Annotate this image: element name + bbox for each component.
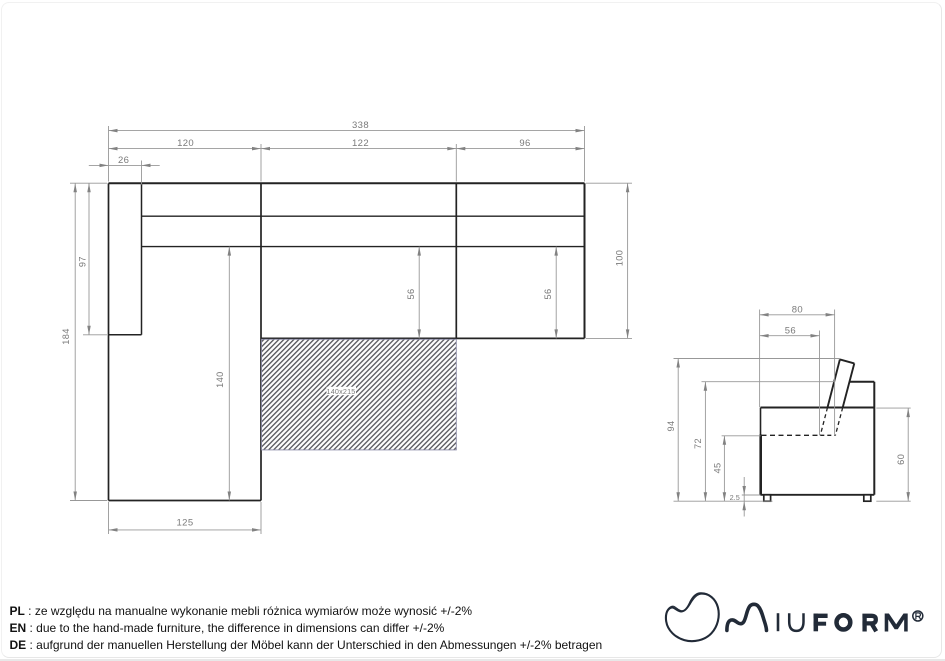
svg-text:2.5: 2.5 (730, 493, 740, 502)
svg-text:140: 140 (215, 371, 225, 388)
svg-text:338: 338 (352, 120, 369, 131)
svg-text:184: 184 (61, 328, 71, 345)
svg-text:100: 100 (614, 250, 624, 267)
svg-text:97: 97 (78, 256, 88, 267)
svg-text:60: 60 (896, 454, 906, 465)
svg-text:26: 26 (118, 155, 129, 166)
svg-text:122: 122 (352, 138, 369, 149)
svg-text:120: 120 (177, 138, 194, 149)
svg-text:72: 72 (693, 438, 703, 449)
svg-text:56: 56 (406, 288, 416, 299)
svg-text:45: 45 (712, 462, 722, 473)
svg-text:125: 125 (176, 517, 193, 528)
svg-text:56: 56 (785, 325, 796, 336)
svg-text:140x215: 140x215 (327, 387, 356, 396)
svg-text:94: 94 (666, 420, 676, 431)
svg-text:56: 56 (543, 288, 553, 299)
svg-text:80: 80 (792, 304, 803, 315)
svg-text:96: 96 (519, 138, 530, 149)
